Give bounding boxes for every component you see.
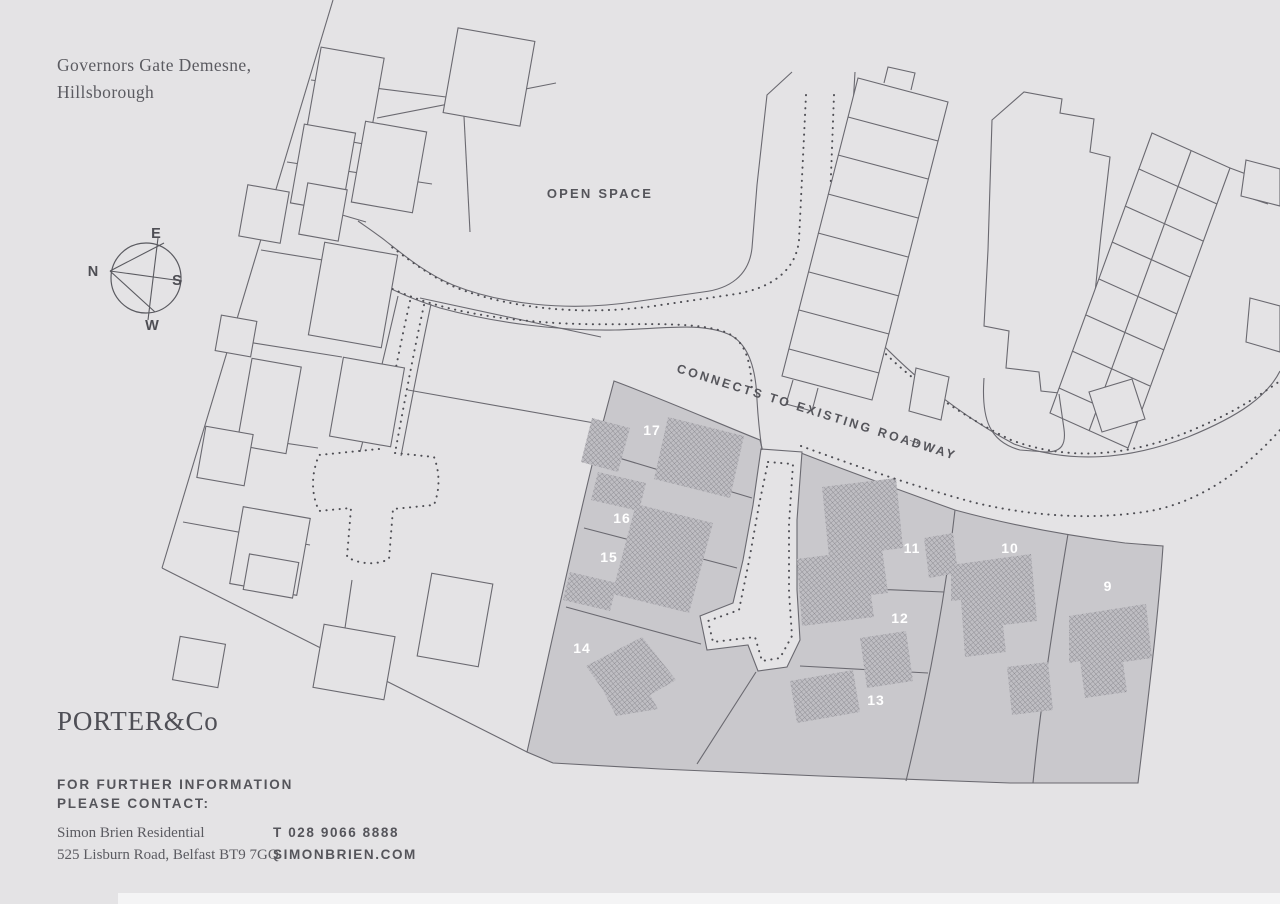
- agent-name: Simon Brien Residential: [57, 825, 205, 841]
- plot-label-11: 11: [904, 540, 921, 556]
- agent-details: Simon Brien Residential525 Lisburn Road,…: [57, 822, 279, 866]
- porter-and-co-logo: PORTER&Co: [57, 706, 219, 737]
- page-title: Governors Gate Demesne,Hillsborough: [57, 52, 251, 106]
- plot-label-9: 9: [1104, 578, 1113, 594]
- house-plot-13-garage: [860, 631, 913, 688]
- compass-east-label: E: [151, 226, 161, 242]
- house-plot-11: [822, 478, 903, 557]
- compass-north-label: N: [88, 264, 98, 280]
- contact-heading: FOR FURTHER INFORMATIONPLEASE CONTACT:: [57, 775, 293, 813]
- title-line1: Governors Gate Demesne,: [57, 55, 251, 75]
- plot-label-10: 10: [1001, 540, 1019, 556]
- open-space-label: OPEN SPACE: [547, 186, 653, 201]
- agent-contact: T 028 9066 8888SIMONBRIEN.COM: [273, 822, 417, 866]
- plot-label-17: 17: [643, 422, 661, 438]
- agent-website: SIMONBRIEN.COM: [273, 847, 417, 862]
- contact-heading-line1: FOR FURTHER INFORMATION: [57, 777, 293, 792]
- site-plan-svg: E N S W OPEN SPACE CONNECTS TO EXISTING …: [0, 0, 1280, 904]
- plot-label-16: 16: [613, 510, 631, 526]
- agent-phone: T 028 9066 8888: [273, 825, 399, 840]
- contact-heading-line2: PLEASE CONTACT:: [57, 796, 210, 811]
- plot-label-12: 12: [891, 610, 909, 626]
- agent-address: 525 Lisburn Road, Belfast BT9 7GQ: [57, 847, 279, 863]
- bottom-edge-strip: [118, 893, 1280, 904]
- site-plan-page: E N S W OPEN SPACE CONNECTS TO EXISTING …: [0, 0, 1280, 904]
- compass-south-label: S: [172, 273, 182, 289]
- plot-label-14: 14: [573, 640, 591, 656]
- plot-label-13: 13: [867, 692, 885, 708]
- compass-west-label: W: [145, 318, 159, 334]
- house-plot-10-garage: [1007, 662, 1053, 715]
- plot-label-15: 15: [600, 549, 618, 565]
- title-line2: Hillsborough: [57, 82, 154, 102]
